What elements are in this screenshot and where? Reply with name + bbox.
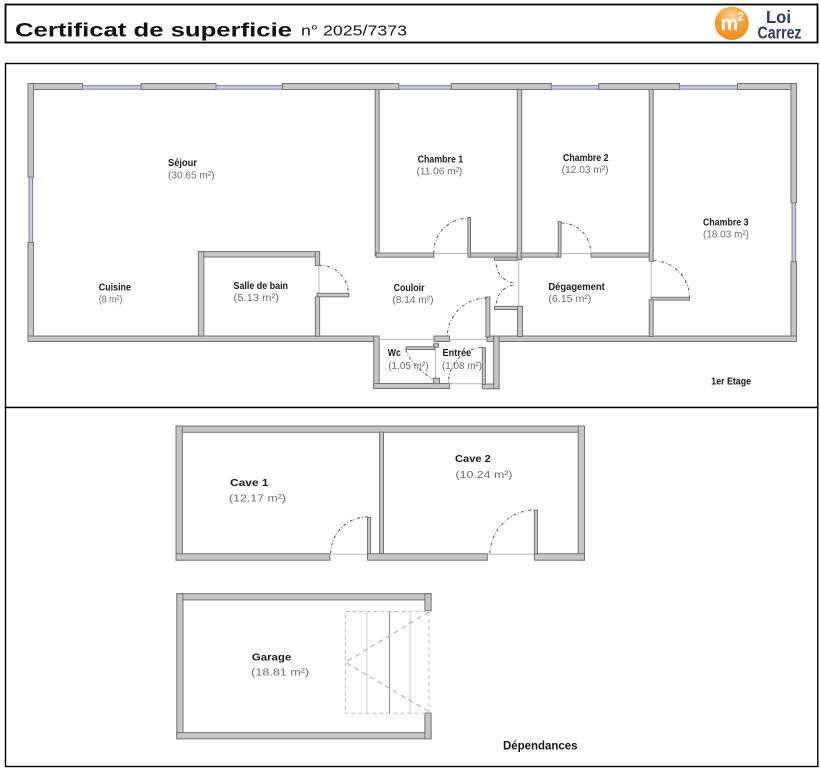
svg-text:(10.24 m²): (10.24 m²) xyxy=(456,470,513,481)
svg-text:Dégagement: Dégagement xyxy=(548,282,605,293)
svg-text:(8 m²): (8 m²) xyxy=(99,295,123,306)
svg-text:(30.65 m²): (30.65 m²) xyxy=(168,171,215,182)
svg-text:Cave 1: Cave 1 xyxy=(230,478,269,489)
svg-text:Cuisine: Cuisine xyxy=(99,283,132,294)
svg-text:Couloir: Couloir xyxy=(394,283,425,294)
svg-text:n° 2025/7373: n° 2025/7373 xyxy=(301,24,407,40)
svg-text:Entrée: Entrée xyxy=(443,348,472,359)
svg-text:Chambre 2: Chambre 2 xyxy=(563,153,609,164)
svg-text:Carrez: Carrez xyxy=(758,23,802,43)
svg-text:(11.06 m²): (11.06 m²) xyxy=(417,166,463,177)
svg-text:Wc: Wc xyxy=(388,348,401,359)
svg-text:Chambre 3: Chambre 3 xyxy=(703,217,749,228)
svg-text:Cave 2: Cave 2 xyxy=(455,454,491,465)
svg-text:(1.05 m²): (1.05 m²) xyxy=(388,361,428,372)
svg-text:2: 2 xyxy=(738,12,744,24)
svg-text:(18.03 m²): (18.03 m²) xyxy=(703,229,749,240)
svg-text:Chambre 1: Chambre 1 xyxy=(418,154,464,165)
svg-text:(1.08 m²): (1.08 m²) xyxy=(442,361,482,372)
svg-text:(12.03 m²): (12.03 m²) xyxy=(562,165,609,176)
svg-text:Salle de bain: Salle de bain xyxy=(234,281,289,292)
svg-text:m: m xyxy=(721,13,739,35)
svg-text:Certificat de superficie: Certificat de superficie xyxy=(15,19,292,41)
svg-text:(12.17 m²): (12.17 m²) xyxy=(229,494,286,505)
svg-text:Dépendances: Dépendances xyxy=(503,741,578,753)
svg-text:(6.15 m²): (6.15 m²) xyxy=(548,294,591,305)
svg-text:(5.13 m²): (5.13 m²) xyxy=(234,293,280,304)
svg-text:Séjour: Séjour xyxy=(168,158,197,169)
svg-text:(8.14 m²): (8.14 m²) xyxy=(393,295,434,306)
svg-text:(18.81 m²): (18.81 m²) xyxy=(251,668,309,679)
svg-text:1er Etage: 1er Etage xyxy=(711,376,751,388)
svg-text:Garage: Garage xyxy=(252,652,292,663)
